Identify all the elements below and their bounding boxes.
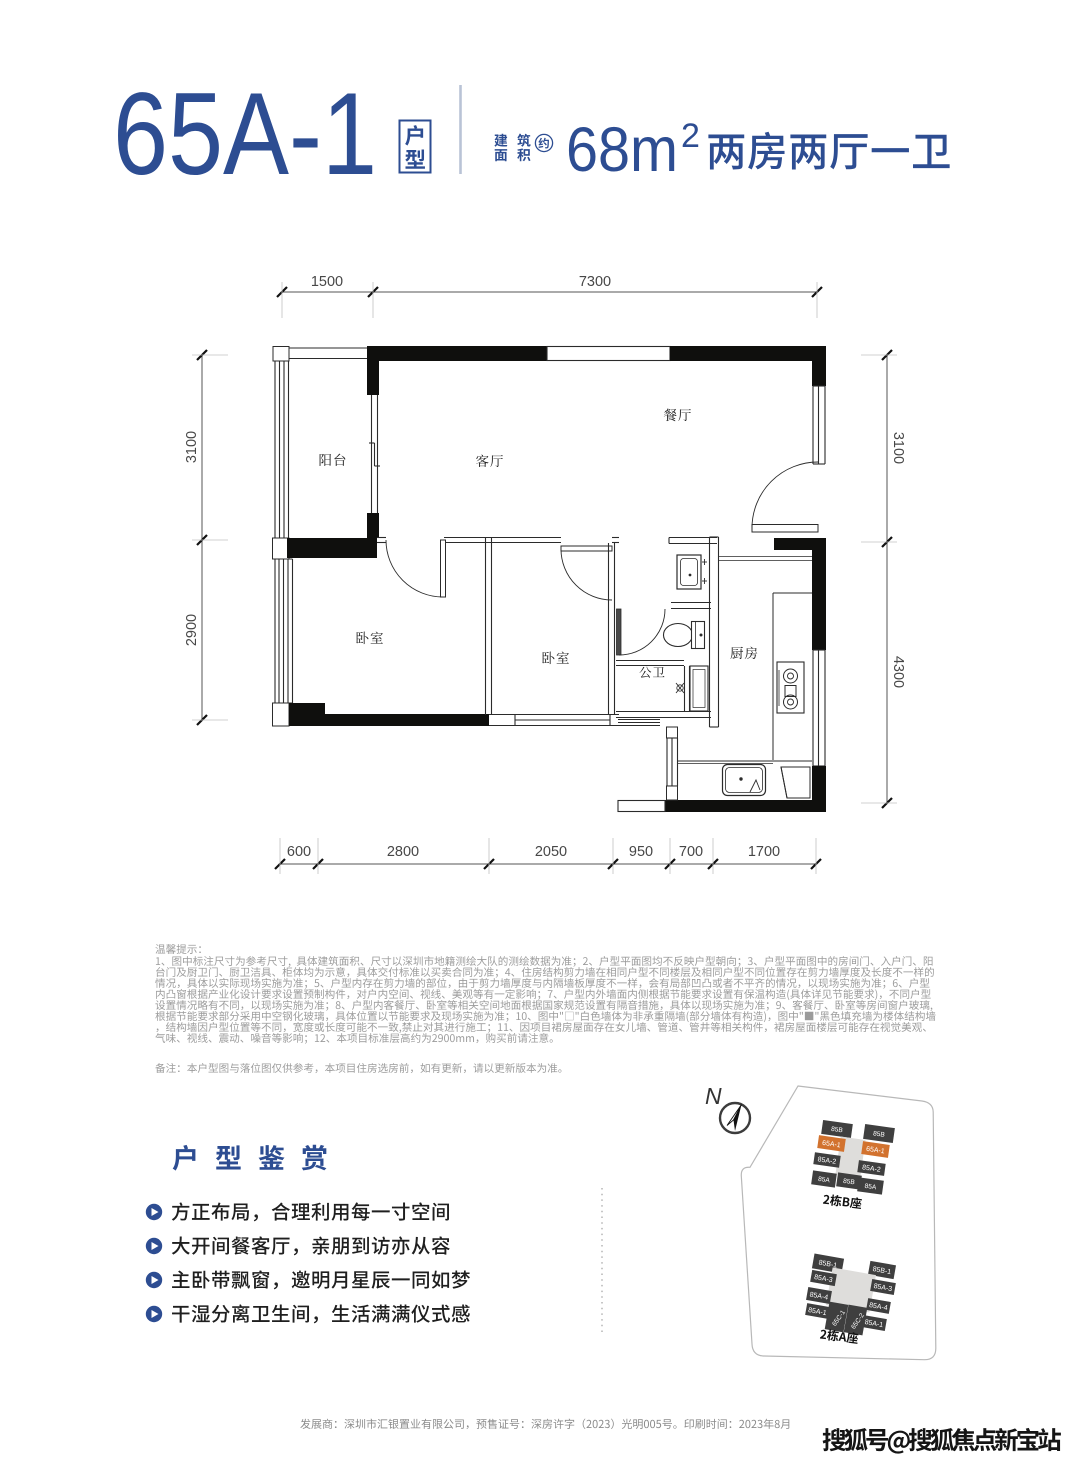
svg-text:2050: 2050: [535, 844, 567, 860]
svg-text:4300: 4300: [890, 656, 906, 688]
svg-text:1700: 1700: [748, 844, 780, 860]
svg-text:3100: 3100: [890, 432, 906, 464]
svg-text:68m: 68m: [566, 115, 678, 185]
svg-text:1500: 1500: [311, 274, 343, 290]
svg-text:2: 2: [681, 117, 700, 155]
svg-text:2900: 2900: [184, 614, 200, 646]
svg-text:65A-1: 65A-1: [113, 68, 377, 199]
svg-text:950: 950: [629, 844, 653, 860]
svg-text:2800: 2800: [387, 844, 419, 860]
svg-text:3100: 3100: [184, 431, 200, 463]
svg-text:7300: 7300: [579, 274, 611, 290]
svg-text:700: 700: [679, 844, 703, 860]
svg-text:N: N: [705, 1083, 722, 1109]
svg-text:600: 600: [287, 844, 311, 860]
